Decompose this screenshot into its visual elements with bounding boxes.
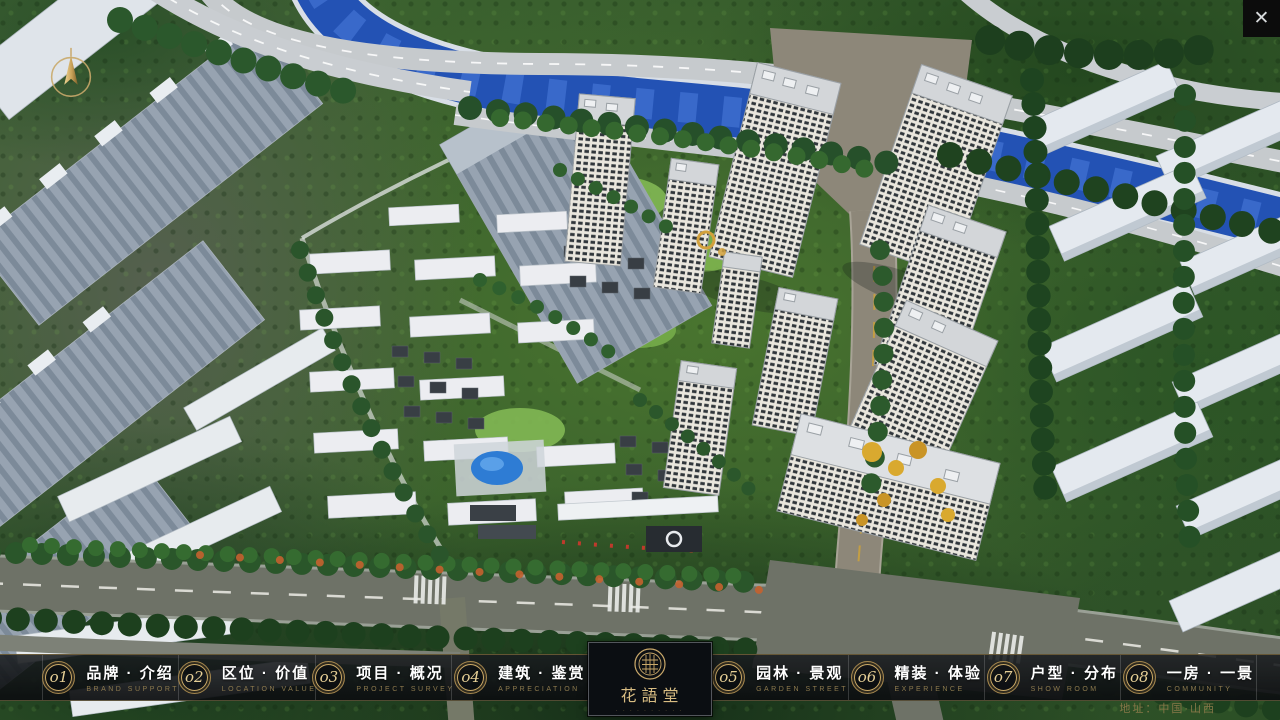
- menu-label-zh: 精装 · 体验: [895, 662, 982, 683]
- menu-item-architecture[interactable]: o4 建筑 · 鉴赏 APPRECIATION: [451, 655, 587, 700]
- menu-label-zh: 区位 · 价值: [222, 662, 309, 683]
- menu-item-interior-experience[interactable]: o6 精装 · 体验 EXPERIENCE: [848, 655, 984, 700]
- menu-label-zh: 品牌 · 介绍: [86, 662, 173, 683]
- brand-title: 花語堂: [615, 682, 683, 706]
- menu-number-badge: o5: [712, 661, 745, 694]
- menu-label-en: BRAND SUPPORT: [86, 686, 179, 693]
- menu-item-floorplan-distribution[interactable]: o7 户型 · 分布 SHOW ROOM: [984, 655, 1120, 700]
- menu-number-badge: o3: [312, 661, 345, 694]
- menu-group-left: o1 品牌 · 介绍 BRAND SUPPORT o2 区位 · 价值 LOCA…: [42, 655, 588, 700]
- menu-item-room-view[interactable]: o8 一房 · 一景 COMMUNITY: [1120, 655, 1257, 700]
- menu-number-badge: o8: [1123, 661, 1156, 694]
- brand-seal-icon: [633, 647, 667, 681]
- menu-label-en: PROJECT SURVEY: [356, 686, 454, 693]
- menu-number-badge: o4: [454, 661, 487, 694]
- close-button[interactable]: ✕: [1243, 0, 1280, 37]
- menu-label-en: EXPERIENCE: [895, 686, 965, 693]
- menu-label-en: APPRECIATION: [498, 686, 580, 693]
- menu-group-right: o5 园林 · 景观 GARDEN STREET o6 精装 · 体验 EXPE…: [712, 655, 1258, 700]
- menu-label-zh: 户型 · 分布: [1031, 662, 1118, 683]
- main-menu: o1 品牌 · 介绍 BRAND SUPPORT o2 区位 · 价值 LOCA…: [0, 654, 1280, 701]
- menu-number-badge: o1: [42, 661, 75, 694]
- menu-item-garden-landscape[interactable]: o5 园林 · 景观 GARDEN STREET: [712, 655, 848, 700]
- aerial-render: [0, 0, 1280, 720]
- compass-north-icon: [40, 44, 102, 106]
- menu-label-zh: 园林 · 景观: [756, 662, 843, 683]
- logo-panel[interactable]: 花語堂 · · · · · · · · · ·: [588, 642, 712, 716]
- project-address: 地址：中国·山西: [1119, 700, 1216, 716]
- menu-item-brand-intro[interactable]: o1 品牌 · 介绍 BRAND SUPPORT: [42, 655, 178, 700]
- menu-label-en: SHOW ROOM: [1031, 686, 1099, 693]
- menu-label-zh: 一房 · 一景: [1167, 662, 1254, 683]
- menu-item-project-overview[interactable]: o3 项目 · 概况 PROJECT SURVEY: [315, 655, 451, 700]
- menu-label-zh: 项目 · 概况: [356, 662, 443, 683]
- menu-number-badge: o7: [987, 661, 1020, 694]
- map-viewport[interactable]: ✕: [0, 0, 1280, 720]
- menu-label-zh: 建筑 · 鉴赏: [498, 662, 585, 683]
- brand-tagline: · · · · · · · · · ·: [616, 708, 683, 714]
- menu-item-location-value[interactable]: o2 区位 · 价值 LOCATION VALUE: [178, 655, 314, 700]
- menu-number-badge: o2: [178, 661, 211, 694]
- menu-number-badge: o6: [851, 661, 884, 694]
- app-window: ✕ o1 品牌 · 介绍 BRAND SUPPORT o2 区位 · 价值 LO…: [0, 0, 1280, 720]
- menu-label-en: COMMUNITY: [1167, 686, 1233, 693]
- menu-label-en: GARDEN STREET: [756, 686, 848, 693]
- menu-label-en: LOCATION VALUE: [222, 686, 317, 693]
